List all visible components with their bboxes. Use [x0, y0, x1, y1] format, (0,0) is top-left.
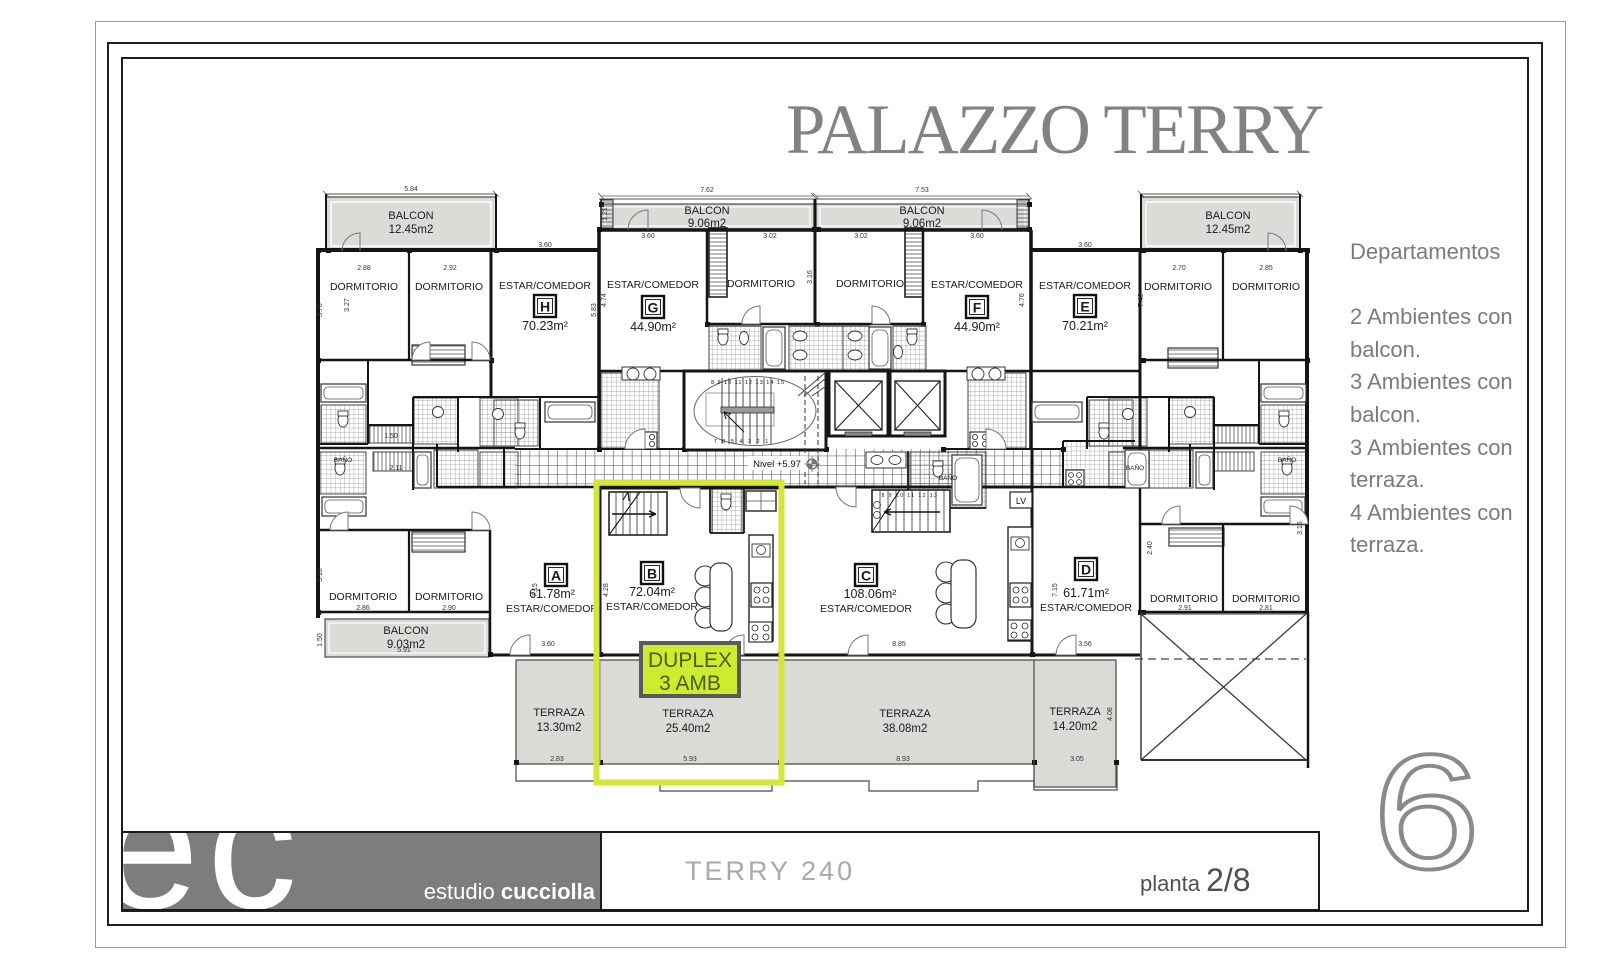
svg-text:9.06m2: 9.06m2	[688, 218, 726, 230]
svg-text:E: E	[1080, 299, 1089, 315]
svg-text:BAÑO: BAÑO	[334, 455, 352, 464]
svg-text:2.83: 2.83	[550, 756, 564, 763]
svg-text:TERRAZA: TERRAZA	[1049, 706, 1101, 718]
svg-text:25.40m2: 25.40m2	[666, 723, 711, 735]
svg-text:4.76: 4.76	[1019, 293, 1026, 307]
svg-text:LV: LV	[1016, 496, 1026, 506]
svg-text:BALCON: BALCON	[388, 210, 433, 222]
svg-text:3.56: 3.56	[1078, 641, 1092, 648]
svg-text:ESTAR/COMEDOR: ESTAR/COMEDOR	[1040, 602, 1132, 614]
svg-text:7.53: 7.53	[915, 187, 929, 194]
svg-text:12.45m2: 12.45m2	[1206, 224, 1251, 236]
svg-text:A: A	[551, 568, 561, 584]
svg-text:ESTAR/COMEDOR: ESTAR/COMEDOR	[931, 279, 1023, 291]
svg-text:8.85: 8.85	[892, 641, 906, 648]
svg-text:5.93: 5.93	[683, 756, 697, 763]
svg-text:38.08m2: 38.08m2	[883, 723, 928, 735]
svg-text:70.21m²: 70.21m²	[1062, 319, 1108, 333]
svg-text:TERRAZA: TERRAZA	[662, 708, 714, 720]
svg-text:2.85: 2.85	[1259, 265, 1273, 272]
svg-text:2.88: 2.88	[357, 265, 371, 272]
svg-text:2.70: 2.70	[1172, 265, 1186, 272]
svg-text:7.15: 7.15	[1052, 583, 1059, 597]
svg-text:8 9 10 11 12 13 14 15: 8 9 10 11 12 13 14 15	[711, 380, 785, 386]
svg-text:8.93: 8.93	[896, 756, 910, 763]
svg-text:2.40: 2.40	[1147, 541, 1154, 555]
svg-text:108.06m²: 108.06m²	[844, 587, 897, 601]
svg-text:72.04m²: 72.04m²	[629, 585, 675, 599]
svg-text:BALCON: BALCON	[383, 625, 428, 637]
svg-text:G: G	[648, 300, 659, 316]
svg-text:7 6 5 4 3 2 1: 7 6 5 4 3 2 1	[714, 439, 771, 445]
svg-text:TERRAZA: TERRAZA	[879, 708, 931, 720]
svg-text:5.83: 5.83	[591, 303, 598, 317]
svg-text:5.84: 5.84	[404, 186, 418, 193]
svg-text:3.10: 3.10	[317, 568, 324, 582]
svg-text:DUPLEX: DUPLEX	[648, 649, 732, 672]
svg-text:BAÑO: BAÑO	[1126, 463, 1144, 472]
svg-text:9.06m2: 9.06m2	[903, 218, 941, 230]
svg-text:ESTAR/COMEDOR: ESTAR/COMEDOR	[506, 603, 598, 615]
svg-text:3.02: 3.02	[854, 233, 868, 240]
svg-text:14.20m2: 14.20m2	[1053, 721, 1098, 733]
svg-text:DORMITORIO: DORMITORIO	[1144, 281, 1212, 293]
svg-text:4.08: 4.08	[1107, 707, 1114, 721]
svg-text:2.90: 2.90	[442, 605, 456, 612]
svg-text:2.91: 2.91	[1178, 605, 1192, 612]
svg-text:2.86: 2.86	[356, 605, 370, 612]
svg-text:6: 6	[1372, 730, 1480, 885]
svg-text:8 9 10 11 12 13: 8 9 10 11 12 13	[882, 493, 939, 499]
svg-text:DORMITORIO: DORMITORIO	[415, 281, 483, 293]
svg-text:3.16: 3.16	[807, 270, 814, 284]
svg-text:2.81: 2.81	[1259, 605, 1273, 612]
svg-text:3.05: 3.05	[1070, 756, 1084, 763]
svg-text:ESTAR/COMEDOR: ESTAR/COMEDOR	[606, 601, 698, 613]
svg-text:B: B	[647, 566, 657, 582]
svg-text:ESTAR/COMEDOR: ESTAR/COMEDOR	[1039, 280, 1131, 292]
svg-text:1.50: 1.50	[317, 633, 324, 647]
svg-text:3.70: 3.70	[317, 303, 324, 317]
svg-text:DORMITORIO: DORMITORIO	[727, 278, 795, 290]
svg-text:3.27: 3.27	[344, 298, 351, 312]
svg-text:DORMITORIO: DORMITORIO	[1150, 593, 1218, 605]
svg-text:3.60: 3.60	[970, 233, 984, 240]
svg-text:BAÑO: BAÑO	[1278, 455, 1296, 464]
svg-text:BALCON: BALCON	[684, 205, 729, 217]
svg-text:44.90m²: 44.90m²	[954, 320, 1000, 334]
svg-text:7.15: 7.15	[532, 583, 539, 597]
svg-text:ESTAR/COMEDOR: ESTAR/COMEDOR	[499, 280, 591, 292]
svg-text:BALCON: BALCON	[899, 205, 944, 217]
svg-text:D: D	[1081, 562, 1091, 578]
svg-text:2.92: 2.92	[443, 265, 457, 272]
svg-text:3.02: 3.02	[763, 233, 777, 240]
svg-text:5.91: 5.91	[397, 647, 411, 654]
svg-text:DORMITORIO: DORMITORIO	[330, 281, 398, 293]
svg-text:DORMITORIO: DORMITORIO	[329, 591, 397, 603]
svg-text:BALCON: BALCON	[1205, 210, 1250, 222]
svg-text:1.50: 1.50	[384, 433, 398, 440]
svg-text:13.30m2: 13.30m2	[537, 722, 582, 734]
svg-text:61.71m²: 61.71m²	[1063, 586, 1109, 600]
svg-text:3 AMB: 3 AMB	[659, 672, 721, 695]
svg-text:H: H	[540, 299, 550, 315]
svg-text:BAÑO: BAÑO	[939, 473, 957, 482]
svg-text:4.28: 4.28	[603, 583, 610, 597]
svg-text:7.42: 7.42	[1138, 293, 1145, 307]
svg-text:3.60: 3.60	[1078, 242, 1092, 249]
svg-text:7.62: 7.62	[700, 187, 714, 194]
svg-text:TERRAZA: TERRAZA	[533, 707, 585, 719]
svg-text:3.60: 3.60	[538, 242, 552, 249]
svg-text:C: C	[861, 568, 871, 584]
svg-text:ESTAR/COMEDOR: ESTAR/COMEDOR	[607, 279, 699, 291]
svg-text:3.60: 3.60	[641, 233, 655, 240]
svg-text:DORMITORIO: DORMITORIO	[415, 591, 483, 603]
svg-text:2.11: 2.11	[389, 465, 402, 472]
svg-text:ESTAR/COMEDOR: ESTAR/COMEDOR	[820, 603, 912, 615]
svg-text:Nivel +5.97: Nivel +5.97	[753, 459, 801, 470]
svg-text:4.74: 4.74	[601, 293, 608, 307]
svg-text:3.60: 3.60	[541, 641, 555, 648]
svg-text:DORMITORIO: DORMITORIO	[1232, 593, 1300, 605]
svg-text:44.90m²: 44.90m²	[630, 320, 676, 334]
svg-text:F: F	[973, 300, 982, 316]
svg-text:1.21: 1.21	[602, 207, 609, 221]
svg-text:DORMITORIO: DORMITORIO	[836, 278, 904, 290]
svg-text:3.15: 3.15	[1297, 521, 1304, 535]
svg-text:DORMITORIO: DORMITORIO	[1232, 281, 1300, 293]
svg-text:70.23m²: 70.23m²	[522, 319, 568, 333]
svg-text:12.45m2: 12.45m2	[389, 224, 434, 236]
